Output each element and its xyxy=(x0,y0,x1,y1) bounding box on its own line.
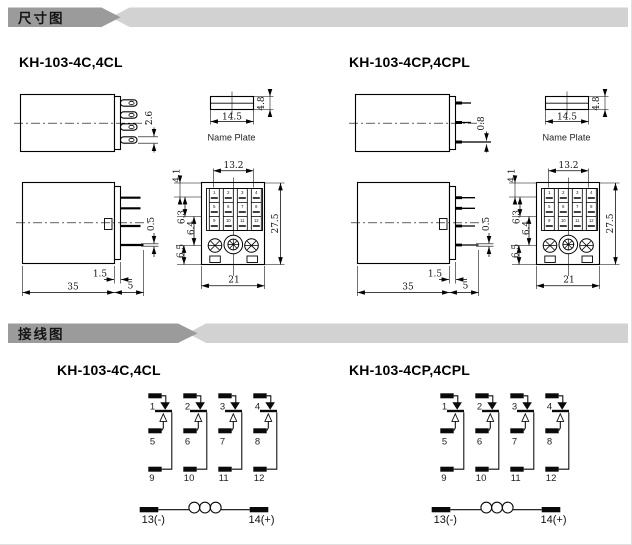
wiring-terminal-number: 9 xyxy=(441,473,446,484)
wiring-terminal-number: 8 xyxy=(255,436,260,447)
dim-seg-row: 6.3 xyxy=(178,210,188,225)
dim-pin-thickness: 0.5 xyxy=(482,217,492,232)
dim-seg-top: 4.1 xyxy=(508,168,518,182)
dim-plate-width: 14.5 xyxy=(557,113,577,123)
dim-flange-width: 1.5 xyxy=(93,270,108,280)
dim-plate-width: 14.5 xyxy=(222,113,242,123)
model-heading-wiring-4cp: KH-103-4CP,4CPL xyxy=(349,362,470,378)
name-plate-label: Name Plate xyxy=(207,133,255,143)
dim-pin-length: 5 xyxy=(128,282,134,292)
dimension-drawing-4cp: 0.8 14.5 4.8 Name Plate 0.5 1.5 35 5 13.… xyxy=(335,80,632,310)
wiring-terminal-number: 1 xyxy=(442,402,447,413)
dim-seg-mid: 6.4 xyxy=(522,221,532,236)
wiring-terminal-number: 2 xyxy=(477,402,482,413)
wiring-terminal-number: 1 xyxy=(150,402,155,413)
wiring-terminal-number: 5 xyxy=(442,436,447,447)
dim-flange-width: 1.5 xyxy=(428,270,443,280)
model-heading-dim-4c: KH-103-4C,4CL xyxy=(19,54,123,70)
name-plate-label: Name Plate xyxy=(542,133,590,143)
dim-terminal-span: 13.2 xyxy=(223,161,243,171)
dim-socket-width: 21 xyxy=(563,276,574,286)
dim-body-length: 35 xyxy=(67,283,79,293)
coil-positive-label: 14(+) xyxy=(249,514,275,526)
wiring-terminal-number: 6 xyxy=(185,436,190,447)
wiring-terminal-number: 4 xyxy=(255,402,260,413)
banner-light-band xyxy=(111,8,628,28)
dim-body-length: 35 xyxy=(402,283,414,293)
wiring-terminal-number: 3 xyxy=(220,402,225,413)
wiring-diagram-4c: 1 2 3 4 5 6 7 8 9 10 11 12 13(-) 14(+) xyxy=(136,388,278,530)
dim-terminal-span: 13.2 xyxy=(558,161,578,171)
wiring-terminal-number: 7 xyxy=(512,436,517,447)
wiring-terminal-number: 6 xyxy=(477,436,482,447)
dim-seg-row: 6.3 xyxy=(513,210,523,225)
banner-light-band xyxy=(188,324,629,344)
wiring-terminal-number: 2 xyxy=(185,402,190,413)
coil-negative-label: 13(-) xyxy=(142,514,165,526)
wiring-terminal-number: 9 xyxy=(149,473,154,484)
socket-terminal-number: 10 xyxy=(561,218,566,223)
wiring-terminal-number: 4 xyxy=(547,402,552,413)
dim-seg-bottom: 6.5 xyxy=(177,244,187,259)
section-banner-wiring: 接线图 xyxy=(0,316,632,350)
wiring-terminal-number: 7 xyxy=(220,436,225,447)
dim-socket-height: 27.5 xyxy=(606,213,616,233)
dim-plate-height: 4.8 xyxy=(592,96,602,111)
dim-plate-height: 4.8 xyxy=(257,96,267,111)
wiring-terminal-number: 10 xyxy=(184,473,195,484)
dimension-drawing-4c: 2.6 14.5 4.8 Name Plate 0.5 1.5 35 5 13.… xyxy=(0,80,316,310)
wiring-terminal-number: 5 xyxy=(150,436,155,447)
model-heading-wiring-4c: KH-103-4C,4CL xyxy=(57,362,161,378)
wiring-terminal-number: 8 xyxy=(547,436,552,447)
dim-socket-height: 27.5 xyxy=(271,213,281,233)
coil-positive-label: 14(+) xyxy=(541,514,567,526)
wiring-terminal-number: 12 xyxy=(546,473,557,484)
wiring-terminal-number: 12 xyxy=(254,473,265,484)
coil-negative-label: 13(-) xyxy=(434,514,457,526)
wiring-terminal-number: 10 xyxy=(476,473,487,484)
wiring-terminal-number: 11 xyxy=(219,473,229,484)
dim-pin-length: 5 xyxy=(463,282,469,292)
dim-socket-width: 21 xyxy=(228,276,239,286)
socket-terminal-number: 11 xyxy=(240,218,245,223)
section-title-dimensions: 尺寸图 xyxy=(18,10,65,26)
socket-terminal-number: 12 xyxy=(589,218,594,223)
datasheet-page: 尺寸图 KH-103-4C,4CL KH-103-4CP,4CPL 2.6 14… xyxy=(0,0,632,545)
section-banner-dimensions: 尺寸图 xyxy=(0,0,632,34)
dim-pin-diameter: 0.8 xyxy=(477,116,487,131)
socket-terminal-number: 10 xyxy=(226,218,231,223)
dim-seg-bottom: 6.5 xyxy=(512,244,522,259)
dim-seg-top: 4.1 xyxy=(173,168,183,182)
wiring-diagram-4cp: 1 2 3 4 5 6 7 8 9 10 11 12 13(-) 14(+) xyxy=(428,388,570,530)
wiring-terminal-number: 3 xyxy=(512,402,517,413)
socket-terminal-number: 11 xyxy=(575,218,580,223)
socket-terminal-number: 12 xyxy=(254,218,259,223)
section-title-wiring: 接线图 xyxy=(18,326,65,342)
dim-pin-thickness: 0.5 xyxy=(147,217,157,232)
dim-seg-mid: 6.4 xyxy=(187,221,197,236)
dim-blade-thickness: 2.6 xyxy=(145,111,155,126)
model-heading-dim-4cp: KH-103-4CP,4CPL xyxy=(349,54,470,70)
wiring-terminal-number: 11 xyxy=(511,473,521,484)
